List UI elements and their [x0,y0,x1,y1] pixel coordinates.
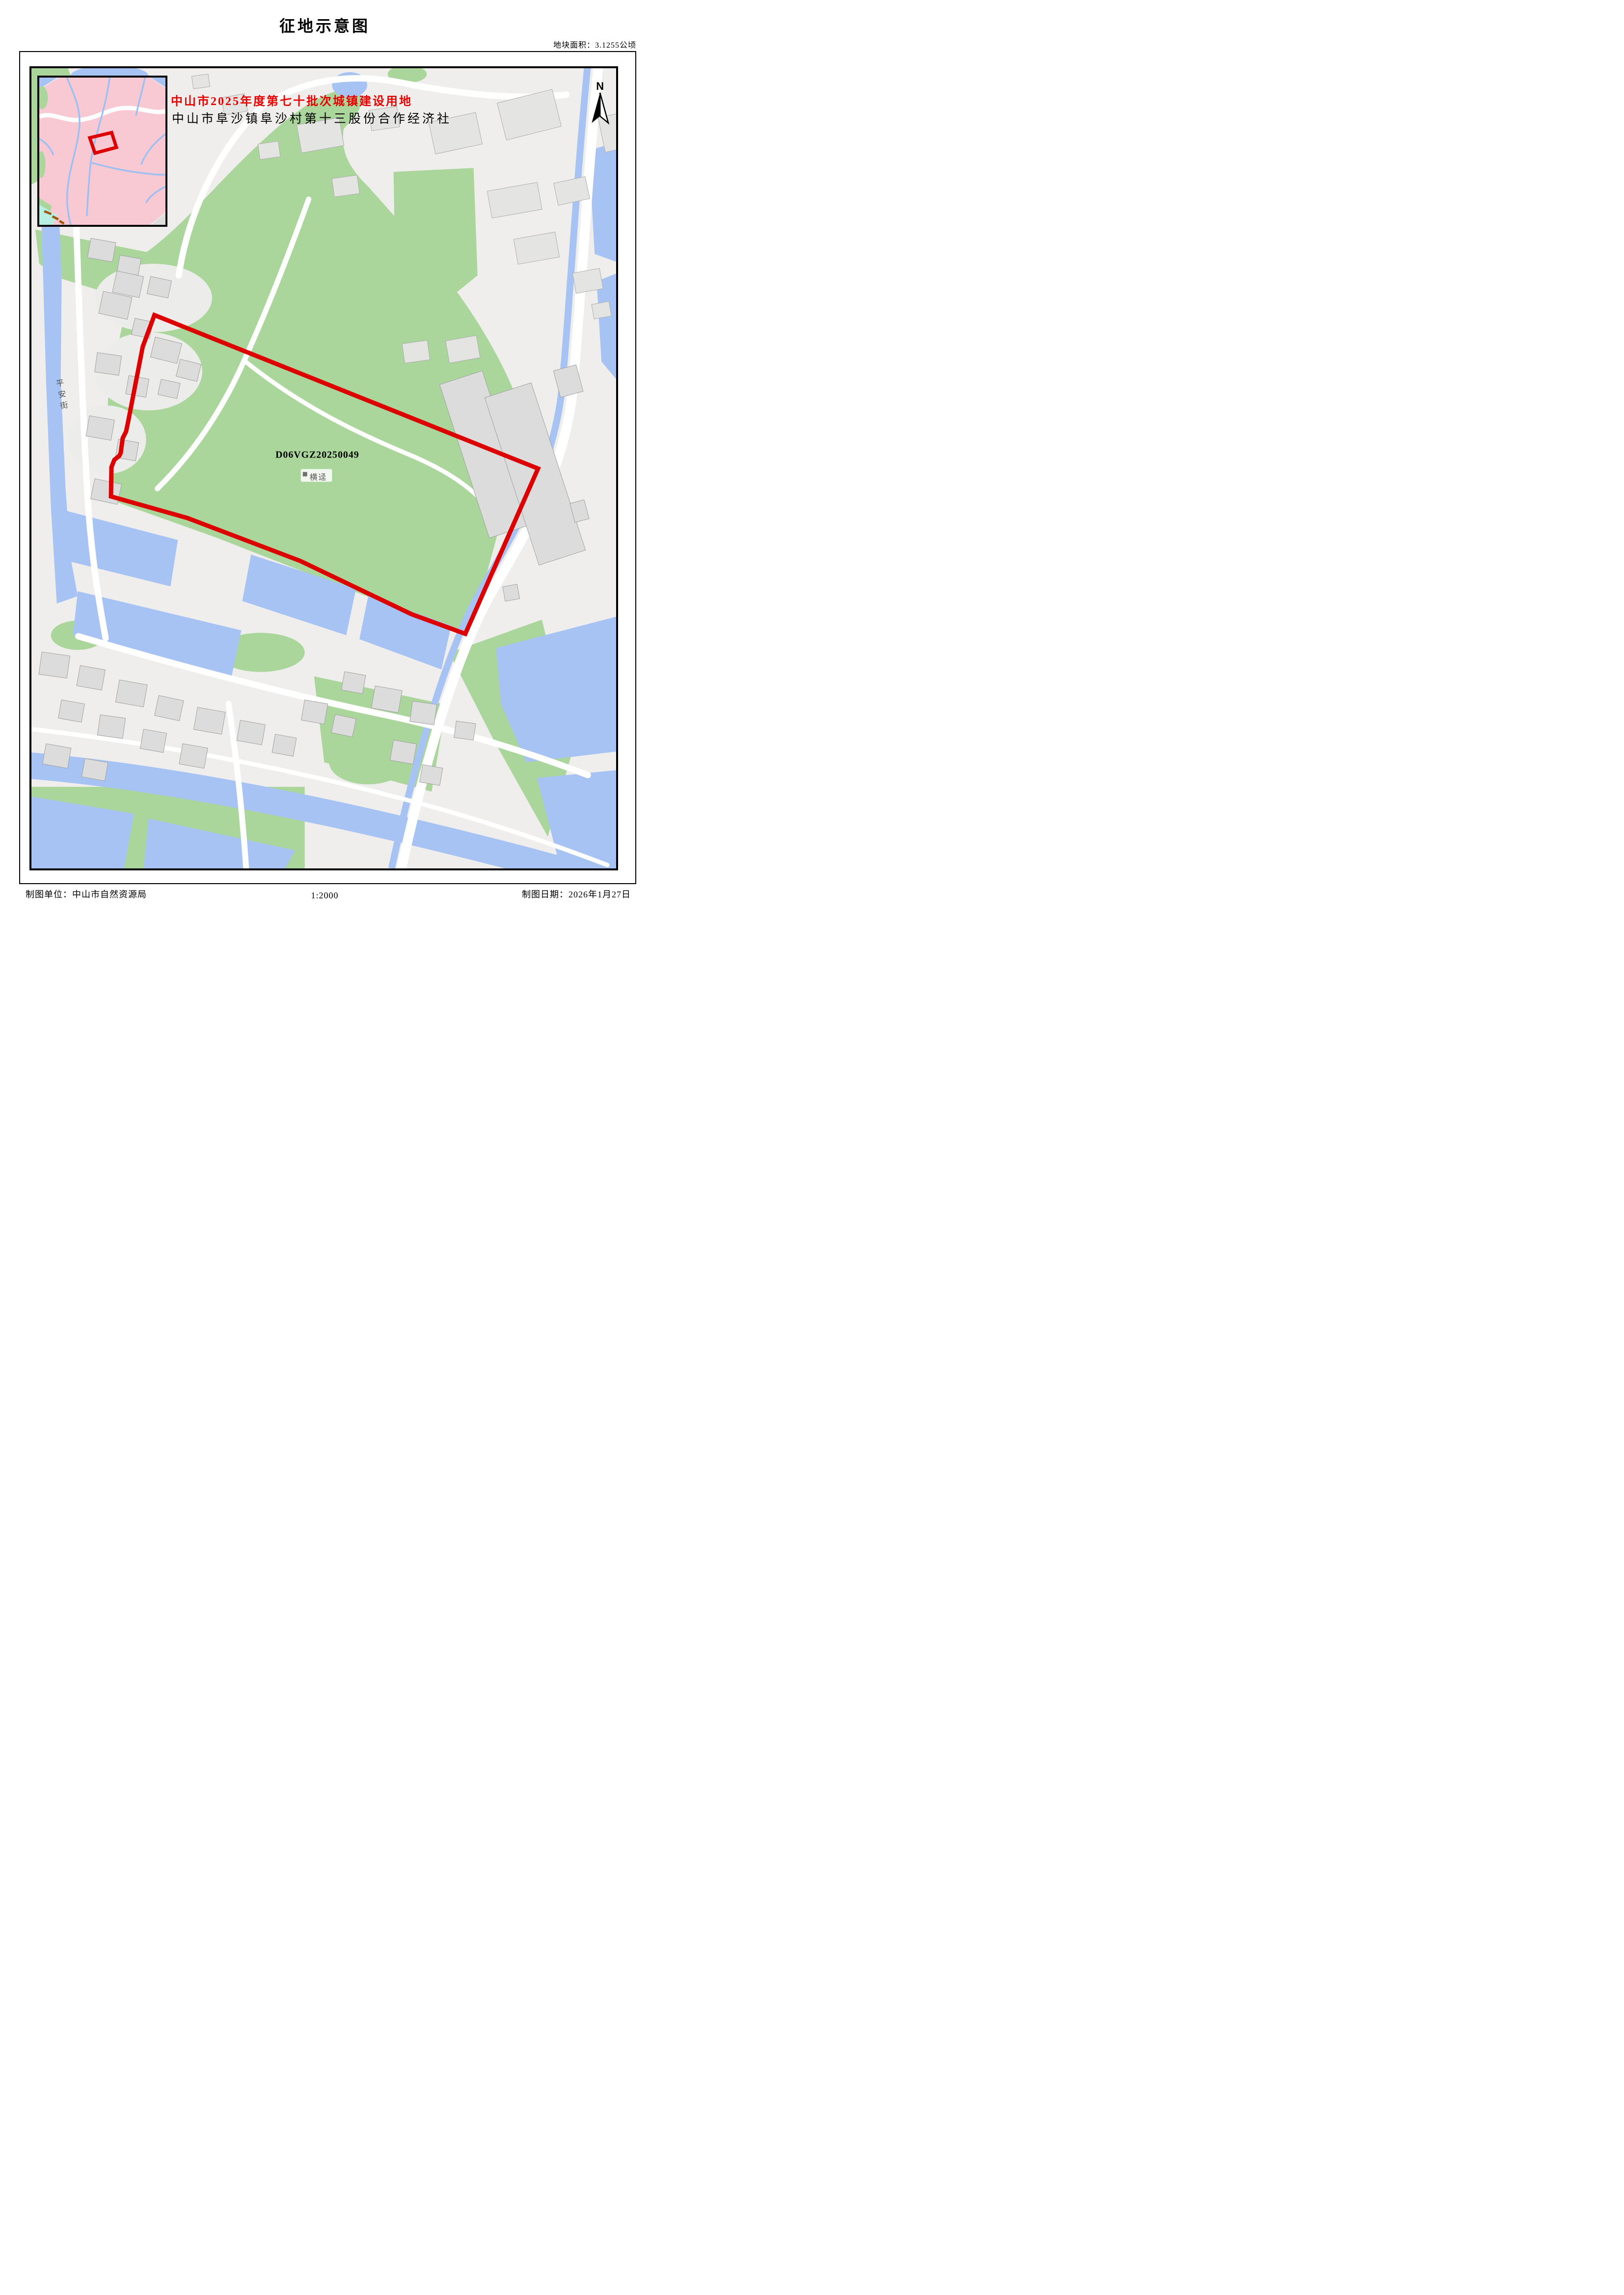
north-letter: N [596,80,604,92]
cooperative-title-black: 中山市阜沙镇阜沙村第十三股份合作经济社 [172,109,452,127]
place-marker-icon [303,472,307,476]
land-acquisition-map-page: 征地示意图 地块面积：3.1255公顷 [0,0,650,918]
place-label-text: 横迳 [310,473,327,482]
place-label-hengjing: 横迳 [301,469,332,482]
inset-locator-map [37,76,167,227]
mapping-date-label: 制图日期：2026年1月27日 [522,888,631,900]
page-title: 征地示意图 [0,14,650,36]
batch-title-red: 中山市2025年度第七十批次城镇建设用地 [171,91,412,108]
parcel-area-label: 地块面积：3.1255公顷 [553,38,636,50]
parcel-code-label: D06VGZ20250049 [275,450,359,460]
